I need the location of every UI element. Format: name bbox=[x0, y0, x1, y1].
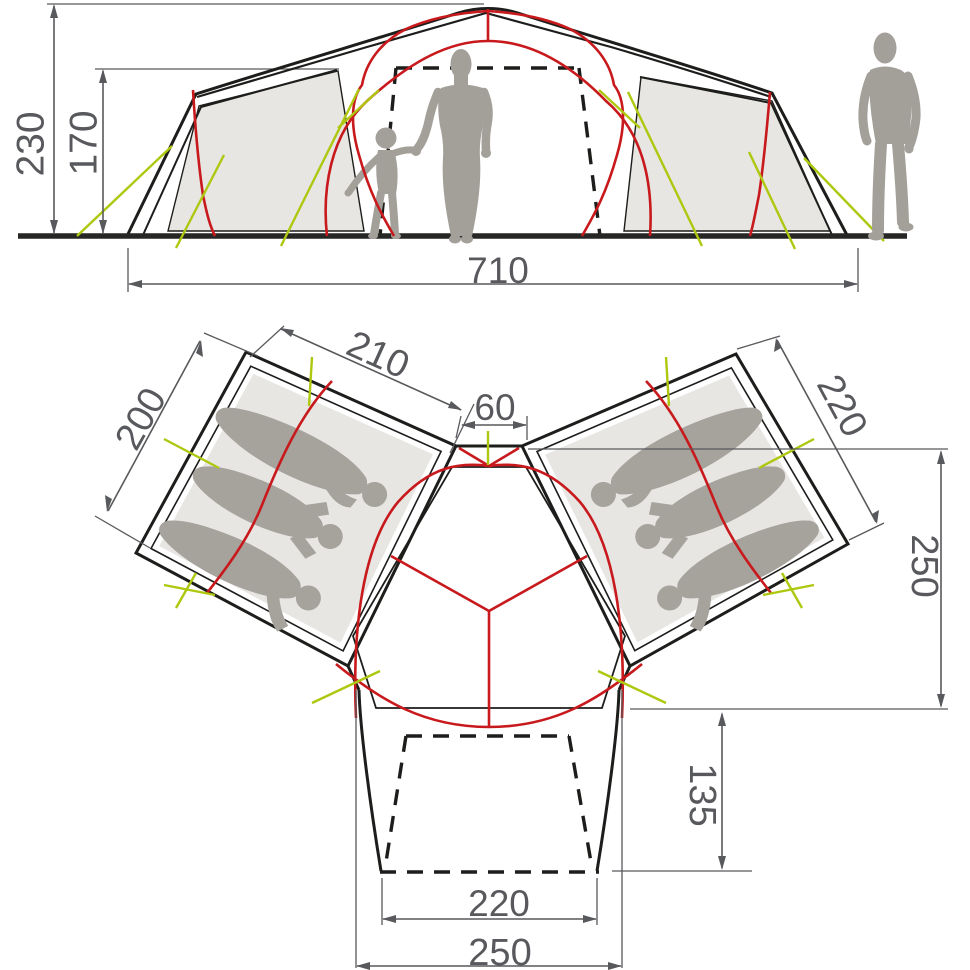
svg-text:250: 250 bbox=[468, 932, 531, 970]
svg-text:230: 230 bbox=[9, 111, 52, 176]
svg-text:250: 250 bbox=[903, 534, 945, 597]
svg-text:60: 60 bbox=[474, 387, 515, 428]
svg-text:220: 220 bbox=[468, 883, 530, 924]
svg-text:170: 170 bbox=[62, 110, 105, 175]
svg-text:710: 710 bbox=[467, 250, 529, 291]
svg-text:135: 135 bbox=[681, 763, 723, 826]
